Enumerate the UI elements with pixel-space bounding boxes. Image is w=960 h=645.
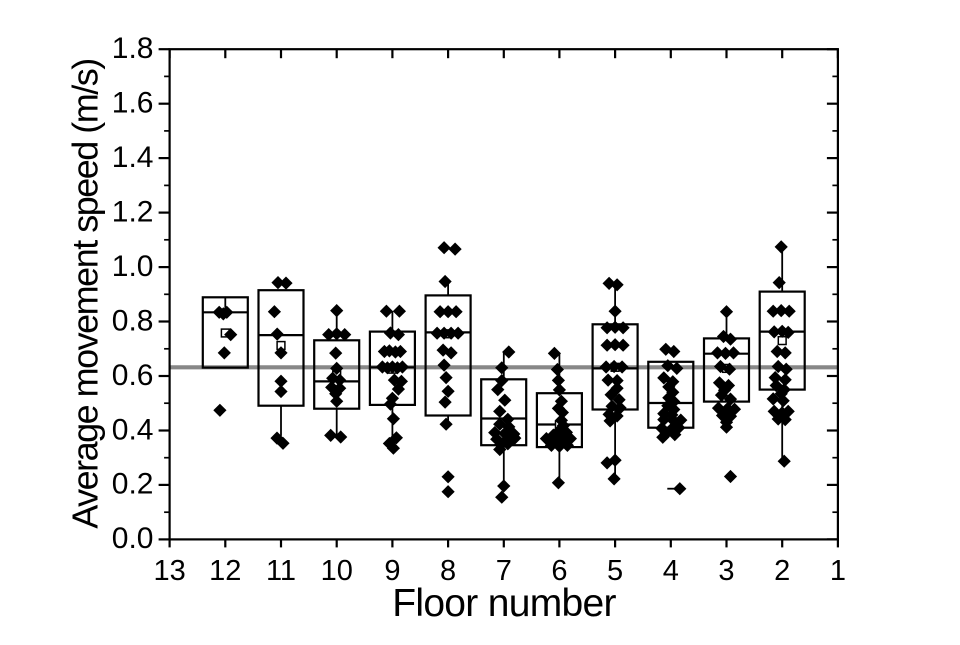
svg-text:0.6: 0.6 [112, 359, 154, 392]
svg-text:1: 1 [830, 555, 846, 587]
svg-text:11: 11 [266, 555, 296, 587]
svg-text:3: 3 [718, 555, 734, 587]
svg-text:1.2: 1.2 [112, 195, 154, 228]
svg-text:0.4: 0.4 [112, 413, 154, 446]
svg-text:10: 10 [321, 555, 353, 587]
svg-text:1.4: 1.4 [112, 141, 154, 174]
svg-text:1.6: 1.6 [112, 87, 154, 120]
svg-text:13: 13 [153, 555, 185, 587]
svg-text:4: 4 [663, 555, 679, 587]
svg-text:2: 2 [774, 555, 790, 587]
svg-text:1.0: 1.0 [112, 250, 154, 283]
svg-text:0.2: 0.2 [112, 468, 154, 501]
svg-text:1.8: 1.8 [112, 32, 154, 65]
svg-text:0.8: 0.8 [112, 304, 154, 337]
svg-text:0.0: 0.0 [112, 522, 154, 555]
svg-text:Floor number: Floor number [392, 582, 616, 625]
svg-text:Average movement speed (m/s): Average movement speed (m/s) [65, 59, 106, 529]
svg-text:12: 12 [209, 555, 241, 587]
